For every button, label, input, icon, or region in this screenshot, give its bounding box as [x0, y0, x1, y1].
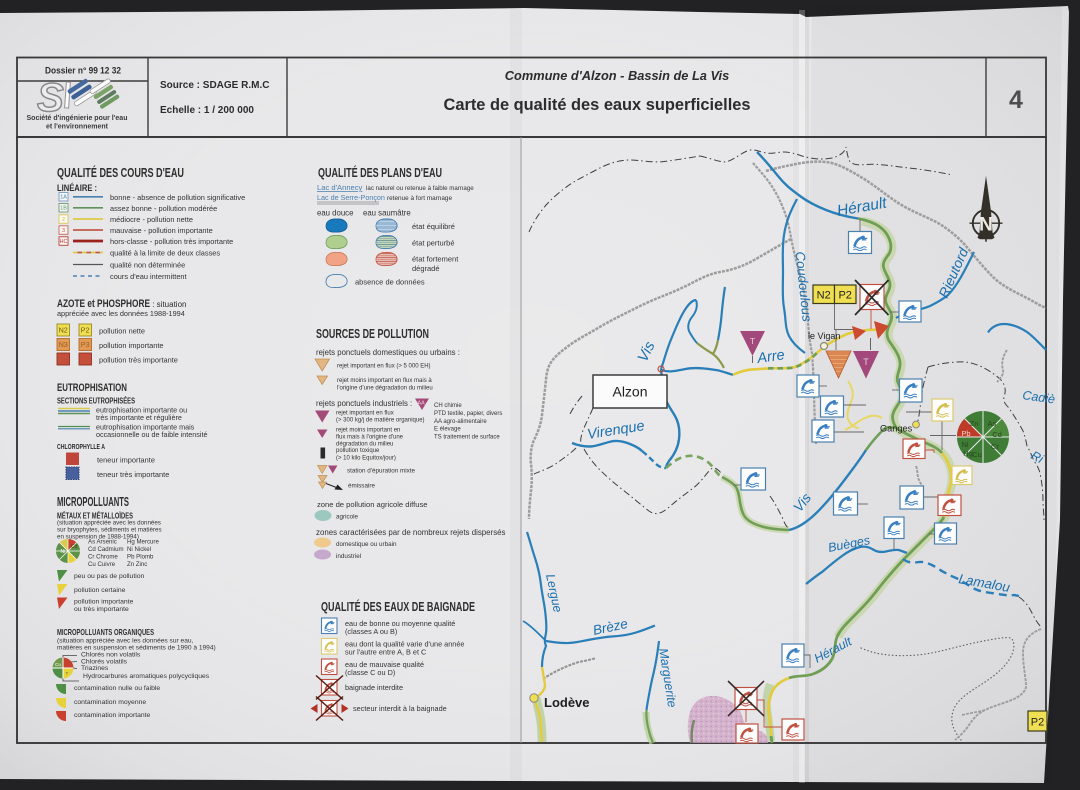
- svg-text:sur bryophytes, sédiments et m: sur bryophytes, sédiments et matières: [57, 527, 162, 534]
- svg-text:Hydrocarbures aromatiques poly: Hydrocarbures aromatiques polycycliques: [83, 673, 210, 680]
- svg-text:dégradé: dégradé: [412, 264, 440, 273]
- svg-text:contamination moyenne: contamination moyenne: [74, 699, 146, 706]
- svg-text:le Vigan: le Vigan: [808, 331, 840, 341]
- svg-text:2: 2: [62, 217, 65, 223]
- svg-text:médiocre - pollution nette: médiocre - pollution nette: [110, 215, 193, 224]
- svg-text:P3: P3: [81, 340, 90, 349]
- svg-text:rejets ponctuels domestiques o: rejets ponctuels domestiques ou urbains …: [316, 348, 460, 357]
- svg-text:pollution importante: pollution importante: [74, 599, 134, 606]
- svg-text:N2: N2: [59, 326, 68, 335]
- svg-text:MICROPOLLUANTS ORGANIQUES: MICROPOLLUANTS ORGANIQUES: [57, 628, 154, 637]
- svg-text:(classes A ou B): (classes A ou B): [345, 627, 397, 636]
- svg-text:Echelle : 1 / 200 000: Echelle : 1 / 200 000: [160, 105, 254, 116]
- svg-text:et l'environnement: et l'environnement: [46, 124, 109, 131]
- svg-text:Hg: Hg: [963, 449, 973, 458]
- svg-text:teneur très importante: teneur très importante: [97, 470, 169, 479]
- svg-text:CH chimie: CH chimie: [434, 403, 462, 409]
- svg-text:l'origine d'une dégradation du: l'origine d'une dégradation du milieu: [337, 386, 433, 392]
- svg-text:MICROPOLLUANTS: MICROPOLLUANTS: [57, 495, 129, 509]
- svg-text:qualité à la limite de deux cl: qualité à la limite de deux classes: [110, 249, 220, 258]
- svg-text:Zn: Zn: [970, 419, 979, 428]
- svg-text:As: As: [988, 419, 997, 428]
- svg-text:pollution nette: pollution nette: [99, 327, 145, 336]
- svg-text:SECTIONS EUTROPHISÉES: SECTIONS EUTROPHISÉES: [57, 397, 135, 406]
- svg-text:zone de pollution agricole dif: zone de pollution agricole diffuse: [317, 500, 427, 509]
- svg-text:QUALITÉ DES COURS D'EAU: QUALITÉ DES COURS D'EAU: [57, 165, 184, 180]
- svg-text:Source : SDAGE R.M.C: Source : SDAGE R.M.C: [160, 80, 269, 91]
- svg-text:absence de données: absence de données: [355, 278, 425, 287]
- svg-text:rejet important en flux: rejet important en flux: [336, 411, 394, 417]
- svg-text:bonne - absence de pollution s: bonne - absence de pollution significati…: [110, 193, 245, 202]
- svg-text:Triazines: Triazines: [81, 665, 109, 672]
- svg-text:mauvaise - pollution important: mauvaise - pollution importante: [110, 226, 213, 235]
- svg-text:rejet moins important en flux: rejet moins important en flux mais à: [337, 378, 432, 384]
- svg-text:SOURCES DE POLLUTION: SOURCES DE POLLUTION: [316, 326, 429, 341]
- svg-text:1A: 1A: [60, 195, 67, 201]
- svg-text:cours d'eau intermittent: cours d'eau intermittent: [110, 272, 187, 281]
- svg-text:T: T: [863, 357, 869, 367]
- svg-text:T: T: [750, 336, 755, 346]
- svg-text:pollution certaine: pollution certaine: [74, 587, 126, 594]
- svg-text:appréciée avec les données 198: appréciée avec les données 1988-1994: [57, 309, 185, 318]
- svg-text:P2: P2: [81, 326, 90, 335]
- svg-text:Ni Nickel: Ni Nickel: [127, 546, 151, 553]
- svg-text:N2: N2: [817, 290, 831, 302]
- svg-text:secteur interdit à la baignade: secteur interdit à la baignade: [353, 704, 447, 713]
- svg-text:industriel: industriel: [336, 553, 361, 560]
- svg-text:Lodève: Lodève: [544, 695, 590, 710]
- svg-text:P2: P2: [838, 290, 851, 302]
- svg-text:(> 10 kilo Equitox/jour): (> 10 kilo Equitox/jour): [336, 456, 396, 462]
- svg-text:N3: N3: [59, 340, 68, 349]
- svg-text:QUALITÉ DES EAUX DE BAIGNADE: QUALITÉ DES EAUX DE BAIGNADE: [321, 599, 475, 614]
- svg-text:matières en suspension et sédi: matières en suspension et sédiments de 1…: [57, 645, 216, 652]
- svg-text:agricole: agricole: [336, 514, 359, 521]
- svg-text:(situation appréciée avec les: (situation appréciée avec les données: [57, 520, 161, 527]
- svg-text:baignade interdite: baignade interdite: [345, 683, 403, 692]
- svg-text:Cd: Cd: [992, 430, 1002, 439]
- svg-text:Lac d'Annecy: Lac d'Annecy: [317, 183, 363, 192]
- svg-text:assez bonne - pollution modéré: assez bonne - pollution modérée: [110, 204, 217, 213]
- svg-text:émissaire: émissaire: [348, 483, 375, 490]
- svg-text:S: S: [37, 76, 64, 120]
- svg-text:Chlorés non volatils: Chlorés non volatils: [81, 652, 141, 659]
- svg-text:teneur importante: teneur importante: [97, 456, 155, 465]
- svg-text:Cd Cadmium: Cd Cadmium: [88, 546, 124, 553]
- svg-text:AA agro-alimentaire: AA agro-alimentaire: [434, 419, 487, 425]
- svg-text:zones caractérisées par de nom: zones caractérisées par de nombreux reje…: [316, 528, 506, 537]
- svg-text:Ni: Ni: [961, 440, 968, 449]
- svg-text:lac naturel ou retenue à faibl: lac naturel ou retenue à faible marnage: [366, 185, 474, 192]
- svg-text:Ganges: Ganges: [880, 424, 913, 434]
- svg-text:retenue à fort marnage: retenue à fort marnage: [387, 195, 452, 202]
- svg-text:EUTROPHISATION: EUTROPHISATION: [57, 382, 127, 394]
- svg-text:rejet important en flux (> 5 0: rejet important en flux (> 5 000 EH): [337, 364, 431, 370]
- svg-text:dégradation du milieu: dégradation du milieu: [336, 442, 393, 448]
- svg-text:occasionnelle ou de faible int: occasionnelle ou de faible intensité: [96, 430, 207, 439]
- svg-text:Alzon: Alzon: [612, 384, 647, 400]
- svg-text:3: 3: [62, 228, 65, 234]
- svg-text:Zn Zinc: Zn Zinc: [127, 561, 147, 568]
- svg-text:pollution toxique: pollution toxique: [336, 448, 380, 454]
- svg-text:rejets ponctuels industriels :: rejets ponctuels industriels :: [316, 399, 412, 408]
- svg-text:rejet moins important en: rejet moins important en: [336, 428, 400, 434]
- svg-text:As Arsenic: As Arsenic: [88, 539, 117, 546]
- svg-text:état fortement: état fortement: [412, 255, 459, 264]
- svg-text:contamination importante: contamination importante: [74, 712, 151, 719]
- svg-text:Lac de Serre-Ponçon: Lac de Serre-Ponçon: [317, 193, 385, 202]
- svg-text:AA: AA: [418, 401, 426, 407]
- svg-text:qualité non déterminée: qualité non déterminée: [110, 261, 185, 270]
- svg-text:Cd: Cd: [71, 544, 78, 550]
- svg-text:TS traitement de surface: TS traitement de surface: [434, 434, 500, 440]
- svg-text:E élevage: E élevage: [434, 427, 461, 433]
- svg-text:eau saumâtre: eau saumâtre: [363, 209, 411, 218]
- svg-text:pollution importante: pollution importante: [99, 341, 164, 350]
- svg-text:P2: P2: [1031, 717, 1044, 729]
- svg-text:Dossier n° 99 12 32: Dossier n° 99 12 32: [45, 66, 121, 77]
- svg-text:Cr: Cr: [991, 442, 999, 451]
- svg-text:4: 4: [1009, 86, 1023, 114]
- svg-text:T: T: [66, 671, 69, 676]
- svg-text:état perturbé: état perturbé: [412, 239, 455, 248]
- svg-text:Cu: Cu: [55, 662, 61, 667]
- svg-text:Cu: Cu: [972, 450, 982, 459]
- svg-text:Pb: Pb: [961, 429, 970, 438]
- svg-text:peu ou pas de pollution: peu ou pas de pollution: [74, 573, 145, 580]
- svg-text:Pb Plomb: Pb Plomb: [127, 554, 154, 561]
- svg-text:Carte de qualité des eaux supe: Carte de qualité des eaux superficielles: [444, 96, 751, 114]
- svg-text:eau douce: eau douce: [317, 209, 353, 218]
- svg-text:Commune d'Alzon - Bassin de La: Commune d'Alzon - Bassin de La Vis: [505, 68, 729, 83]
- svg-text:contamination nulle ou faible: contamination nulle ou faible: [74, 685, 160, 692]
- svg-text:état équilibré: état équilibré: [412, 222, 455, 231]
- svg-text:Cr Chrome: Cr Chrome: [88, 554, 118, 561]
- svg-text:HC: HC: [60, 239, 68, 245]
- svg-text:flux mais à l'origine d'une: flux mais à l'origine d'une: [336, 435, 404, 441]
- svg-text:CHLOROPHYLLE A: CHLOROPHYLLE A: [57, 442, 105, 451]
- svg-text:domestique ou urbain: domestique ou urbain: [336, 541, 397, 548]
- svg-text:pollution très importante: pollution très importante: [99, 356, 178, 365]
- svg-text:QUALITÉ DES PLANS D'EAU: QUALITÉ DES PLANS D'EAU: [318, 165, 442, 180]
- svg-text:très importante et régulière: très importante et régulière: [96, 413, 182, 422]
- svg-text:1B: 1B: [60, 206, 67, 212]
- svg-text:hors-classe - pollution très i: hors-classe - pollution très importante: [110, 237, 233, 246]
- svg-text:Cu Cuivre: Cu Cuivre: [88, 561, 116, 568]
- svg-text:N: N: [979, 215, 993, 236]
- svg-text:Hg Mercure: Hg Mercure: [127, 539, 159, 546]
- svg-text:sur l'autre entre A, B et C: sur l'autre entre A, B et C: [345, 648, 426, 657]
- svg-text:(situation appréciée avec les: (situation appréciée avec les données su…: [57, 638, 194, 645]
- svg-text:Société d'ingénierie pour l'ea: Société d'ingénierie pour l'eau: [27, 115, 128, 122]
- svg-text:station d'épuration mixte: station d'épuration mixte: [347, 468, 416, 475]
- svg-text:PTD textile, papier, divers: PTD textile, papier, divers: [434, 411, 502, 417]
- svg-text:(classe C ou D): (classe C ou D): [345, 668, 395, 677]
- svg-text:(> 300 kg/j de matière organiq: (> 300 kg/j de matière organique): [336, 418, 425, 424]
- svg-text:Ni: Ni: [61, 549, 66, 555]
- svg-text:ou très importante: ou très importante: [74, 606, 129, 613]
